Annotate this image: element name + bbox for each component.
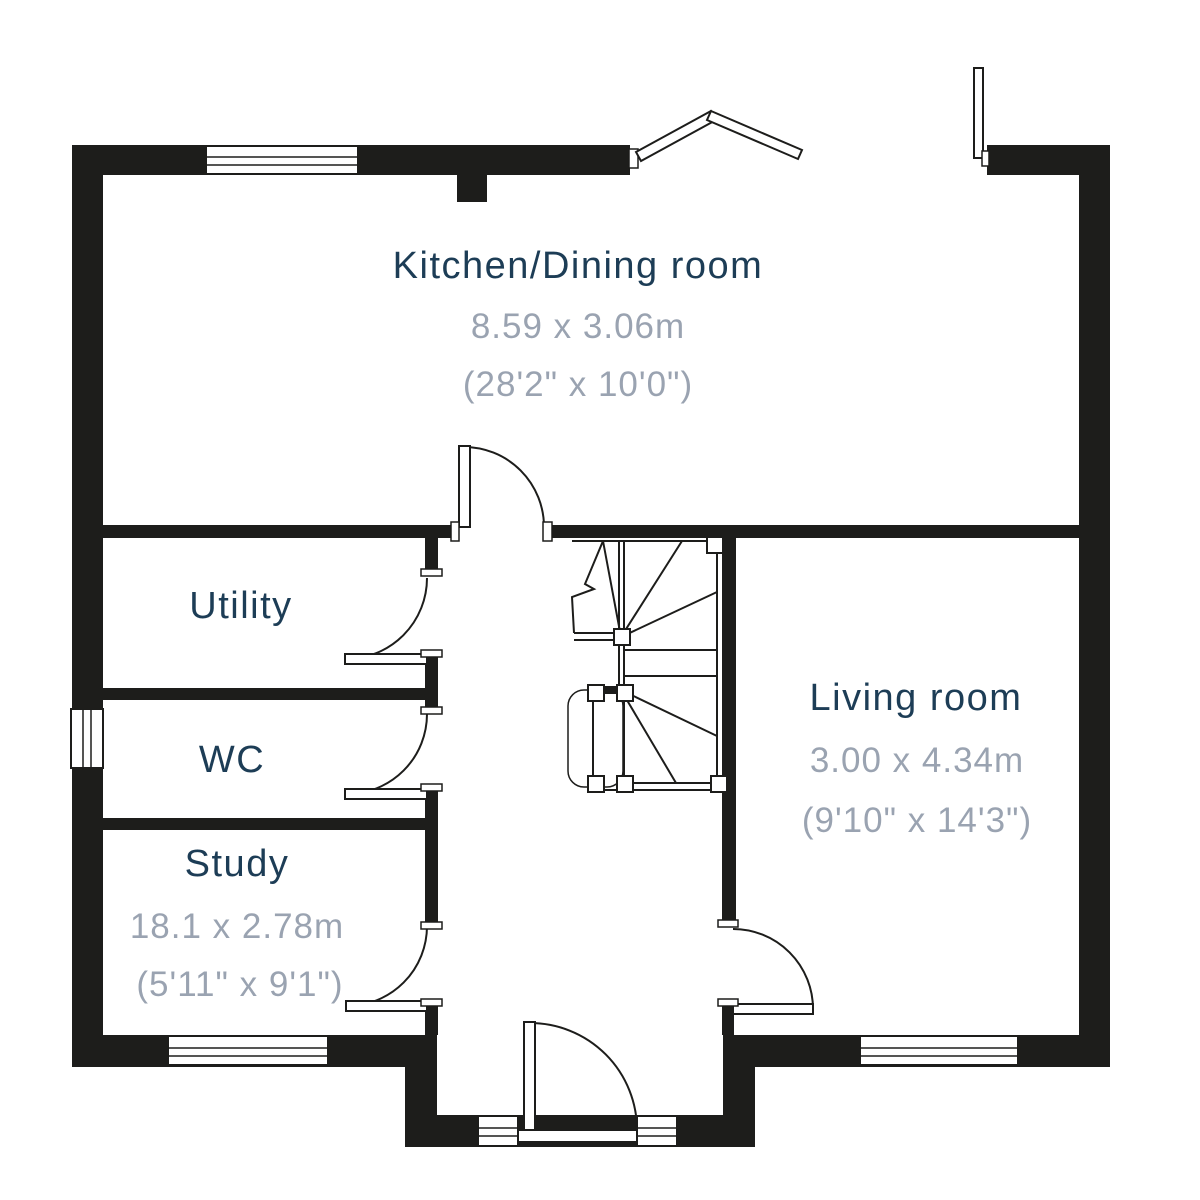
door-jamb	[421, 784, 442, 791]
door-swing-arc	[530, 1023, 637, 1130]
kitchen-label: Kitchen/Dining room	[393, 245, 764, 287]
door-jamb	[421, 650, 442, 657]
stair-straight-treads	[624, 650, 717, 676]
wall-left	[72, 145, 103, 1067]
window-wc-left	[71, 709, 103, 768]
door-jamb	[421, 922, 442, 929]
door-jamb	[451, 522, 459, 541]
wall-utility-wc-divider	[103, 688, 437, 700]
study-label: Study	[185, 843, 290, 885]
bifold-leaf-right	[707, 111, 802, 159]
newel-post	[711, 776, 727, 792]
newel-post	[617, 776, 633, 792]
wall-right	[1079, 145, 1110, 1067]
wall-nib-kitchen	[457, 175, 487, 202]
door-swing-arc	[733, 929, 813, 1009]
wc-door	[345, 707, 442, 799]
study-metric-dim: 18.1 x 2.78m	[130, 907, 344, 946]
wc-label: WC	[199, 739, 265, 781]
stair-break-tread-edge	[574, 633, 619, 640]
door-leaf	[345, 654, 427, 664]
window-sidelight-right	[637, 1116, 677, 1146]
wall-wc-study-divider	[103, 818, 437, 830]
door-jamb	[421, 999, 442, 1006]
living-imperial-dim: (9'10" x 14'3")	[802, 801, 1032, 840]
door-leaf	[346, 1001, 427, 1011]
study-door	[346, 922, 442, 1011]
door-jamb	[718, 999, 738, 1006]
utility-door	[345, 569, 442, 664]
newel-post	[588, 776, 604, 792]
bifold-leaf-left	[636, 111, 716, 161]
door-jamb	[421, 707, 442, 714]
door-jamb	[718, 920, 738, 927]
utility-label: Utility	[189, 585, 292, 627]
door-jamb	[543, 522, 552, 541]
door-threshold	[518, 1130, 637, 1142]
newel-post	[707, 537, 723, 553]
door-swing-arc	[464, 447, 544, 527]
study-imperial-dim: (5'11" x 9'1")	[136, 965, 343, 1004]
window-living-bottom	[860, 1036, 1018, 1065]
window-sidelight-left	[478, 1116, 518, 1146]
door-leaf	[459, 446, 470, 527]
door-leaf	[524, 1022, 535, 1130]
newel-post	[588, 685, 604, 701]
newel-post	[617, 685, 633, 701]
door-leaf-open	[974, 68, 983, 158]
window-study-bottom	[168, 1036, 328, 1065]
bifold-door-top	[629, 68, 989, 168]
floor-plan-page: Kitchen/Dining room 8.59 x 3.06m (28'2" …	[0, 0, 1200, 1200]
wall-kitchen-divider-right	[545, 525, 1080, 538]
kitchen-imperial-dim: (28'2" x 10'0")	[463, 365, 693, 404]
floor-plan: Kitchen/Dining room 8.59 x 3.06m (28'2" …	[0, 0, 1200, 1200]
staircase	[568, 537, 736, 792]
living-room-label: Living room	[810, 677, 1023, 719]
wall-kitchen-divider-left	[103, 525, 455, 538]
kitchen-metric-dim: 8.59 x 3.06m	[471, 307, 685, 346]
stair-winder-treads-lower	[621, 690, 717, 783]
doors	[345, 68, 989, 1142]
window-kitchen-top	[206, 146, 358, 174]
door-jamb	[982, 151, 989, 166]
door-swing-arc	[346, 578, 427, 659]
living-room-door	[718, 920, 813, 1014]
door-swing-arc	[347, 926, 427, 1006]
stair-break-line	[572, 541, 603, 633]
door-leaf	[733, 1004, 813, 1014]
stair-handrail	[568, 690, 623, 787]
door-swing-arc	[347, 714, 427, 794]
kitchen-door	[451, 446, 552, 541]
newel-post	[614, 629, 630, 645]
door-jamb	[421, 569, 442, 576]
room-labels: Kitchen/Dining room 8.59 x 3.06m (28'2" …	[130, 245, 1032, 1004]
wall-hall-3	[425, 790, 438, 928]
wall-stairs-living	[722, 538, 736, 927]
stair-winder-treads-upper	[603, 541, 717, 637]
living-metric-dim: 3.00 x 4.34m	[810, 741, 1024, 780]
door-leaf	[345, 789, 427, 799]
